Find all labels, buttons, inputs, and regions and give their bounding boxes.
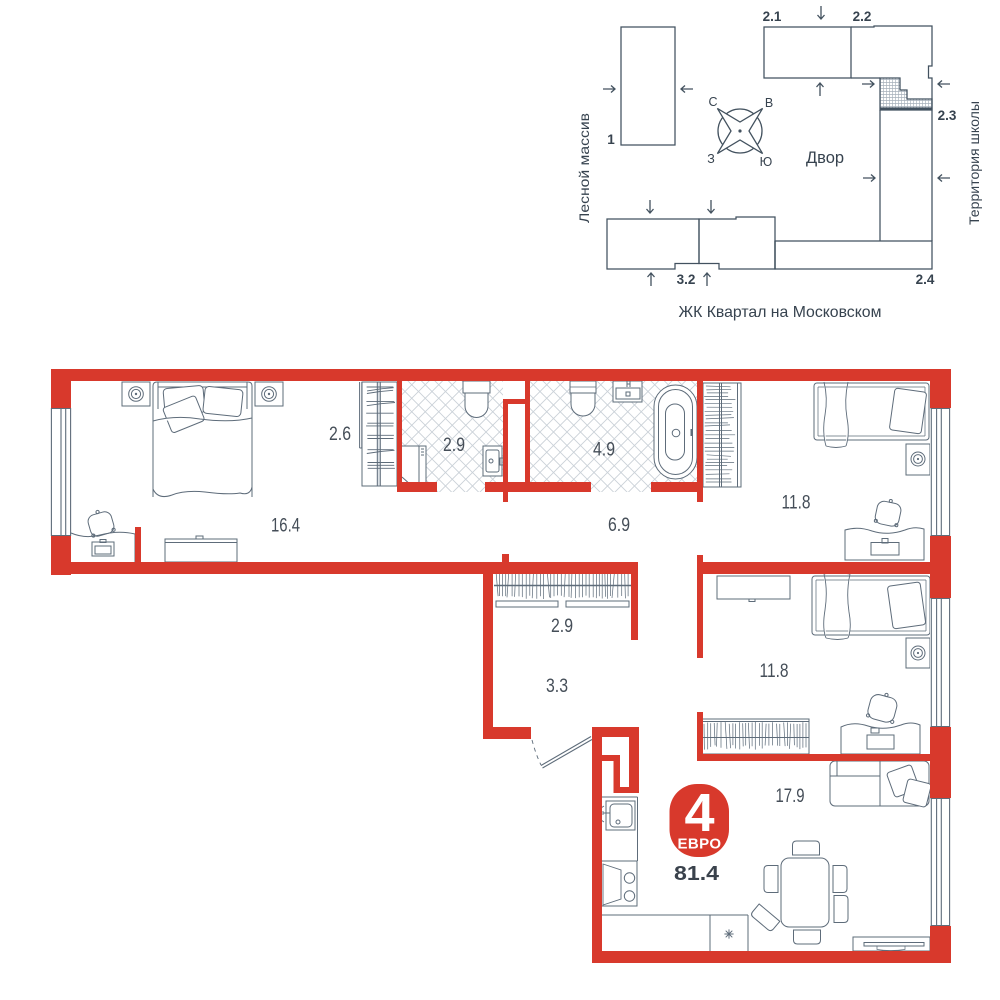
svg-text:Лесной массив: Лесной массив <box>576 113 592 223</box>
svg-text:ЖК Квартал на Московском: ЖК Квартал на Московском <box>679 304 882 321</box>
svg-text:2.4: 2.4 <box>916 272 935 287</box>
svg-text:4: 4 <box>684 783 714 843</box>
svg-text:2.2: 2.2 <box>853 9 872 24</box>
svg-text:Двор: Двор <box>806 149 844 167</box>
svg-text:16.4: 16.4 <box>271 515 300 537</box>
svg-text:4.9: 4.9 <box>593 439 615 461</box>
svg-text:2.9: 2.9 <box>443 434 465 456</box>
svg-text:В: В <box>765 96 773 110</box>
svg-text:81.4: 81.4 <box>674 863 720 885</box>
svg-text:2.6: 2.6 <box>329 423 351 445</box>
svg-text:З: З <box>707 152 715 166</box>
svg-text:С: С <box>708 95 717 109</box>
svg-text:6.9: 6.9 <box>608 514 630 536</box>
svg-text:2.9: 2.9 <box>551 615 573 637</box>
svg-text:1: 1 <box>607 132 615 147</box>
svg-text:2.3: 2.3 <box>938 108 957 123</box>
svg-text:ЕВРО: ЕВРО <box>678 836 722 853</box>
svg-text:11.8: 11.8 <box>782 492 811 514</box>
svg-text:3.3: 3.3 <box>546 675 568 697</box>
svg-text:3.2: 3.2 <box>677 272 696 287</box>
svg-text:2.1: 2.1 <box>763 9 782 24</box>
svg-text:11.8: 11.8 <box>760 660 789 682</box>
svg-text:Ю: Ю <box>760 155 773 169</box>
svg-text:17.9: 17.9 <box>776 785 805 807</box>
svg-text:Территория школы: Территория школы <box>966 101 982 225</box>
